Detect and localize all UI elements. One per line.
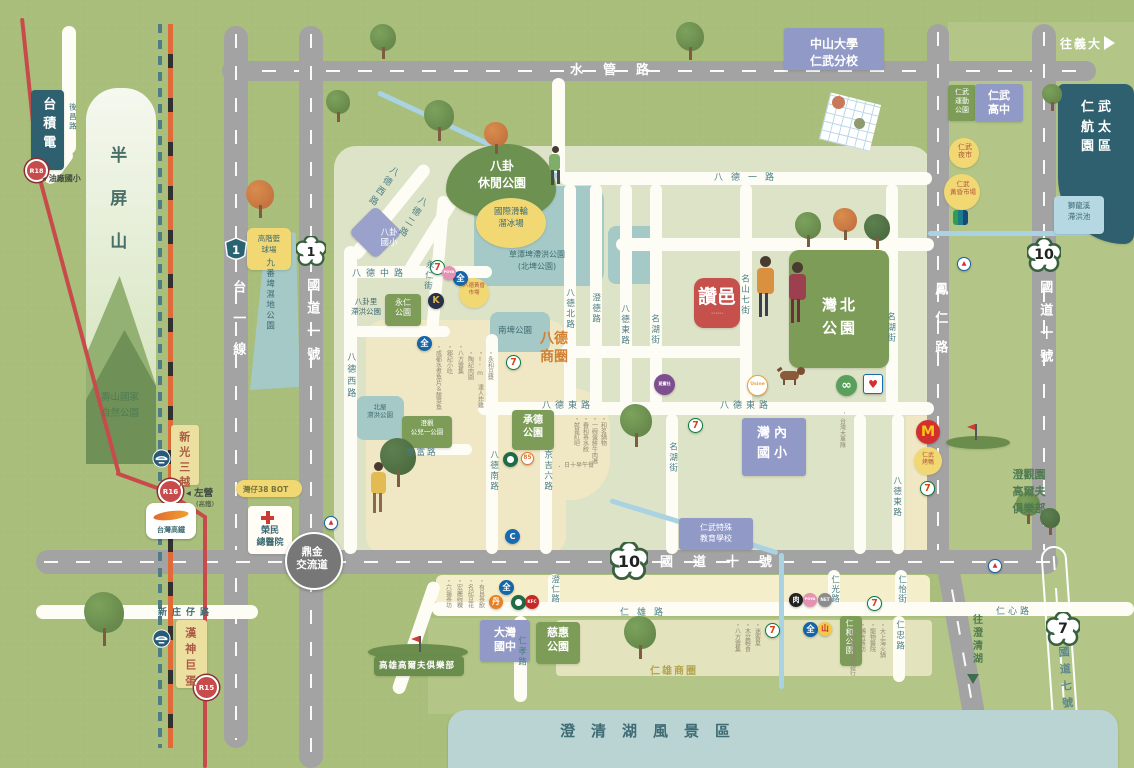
bank-icon-striped [953,210,968,225]
bank-icon-blue-glyph: C [509,532,515,540]
figure-body [371,472,386,494]
poi-label-renwu-hs: 仁武 高中 [977,89,1021,118]
figure-leg [797,299,800,321]
street-label-houchanglu: 後昌路 [68,103,77,132]
fengkang-market-icon: ♥ [863,374,883,394]
figure-body [757,268,774,294]
poi-label-chengqinghu-scenic: 澄清湖風景區 [560,722,746,741]
tree-icon [864,214,890,250]
poi-label-shinkong: 新光三越 [177,431,191,491]
street-label-yongrenjie: 永仁街 [421,260,434,292]
figure-leg [557,170,560,184]
cafe-mimi-icon-glyph: 覓蜜社 [658,382,671,386]
street-label-jingfulu: 京富路 [406,448,438,459]
figure-leg [791,299,794,323]
tree-icon [676,22,704,61]
picnic-illustration [824,94,882,150]
poi-label-beiwu: 北屋 滯洪公園 [358,403,402,420]
street-badexilu-v [344,246,357,554]
figure-head [374,462,383,471]
shop-label: ・有良茶飲 [477,578,485,608]
street-label-badedonglu-n: 八德東路 [619,304,630,346]
poi-label-wannei-es: 灣內 國小 [748,424,800,463]
golf-flag-icon [412,636,428,652]
interchange-label-dingjin: 鼎金 交流道 [288,546,336,572]
tree-icon [424,100,454,142]
poi-label-yongren-park: 永仁 公園 [387,298,419,317]
shop-label: ・迷客夏 [753,622,761,646]
tree-icon [246,180,274,219]
shop-label: ・寵物醫院 [868,622,876,652]
shield-freeway-7: 7 [1046,612,1080,646]
bbq-icon-glyph: 肉 [793,597,800,604]
shop-label: ・大上海火鍋 [878,622,886,658]
golf-flag-icon [968,424,984,440]
pxmart-icon-glyph: 全 [420,339,428,347]
street-label-minghujie-w: 名湖街 [649,314,660,346]
shield-freeway-10-east: 10 [1027,238,1061,272]
shop-label-taxi: ．台灣大車隊 [838,412,846,448]
road-provincial-1 [224,26,248,748]
figure-head [760,256,771,267]
poi-label-dawan-jhs: 大灣 國中 [484,626,526,655]
shop-label-roast-duck: 仁武 烤鴨 [915,452,941,466]
shop-label: ・成都水煮魚片＆酸菜魚 [434,344,442,410]
tree-icon [1042,84,1062,112]
seven-eleven-icon-glyph: 7 [510,358,516,367]
tree-trunk [438,127,441,141]
road-label-freeway-10-south: 國道十號 [660,555,792,571]
street-south-v1 [854,414,866,554]
seven-eleven-icon: 7 [765,623,780,638]
couple-woman-figure [788,262,804,324]
tree-trunk [382,47,385,59]
tree-trunk [337,112,340,123]
bbq-icon: 肉 [789,593,803,607]
road-label-fengrenlu: 鳳仁路 [931,282,947,369]
figure-head [552,146,559,153]
seven-eleven-icon-glyph: 7 [924,484,930,493]
starbucks-siren [515,599,522,606]
bank-icon-yellow-glyph: 山 [821,625,829,633]
street-label-chengdelu: 澄德路 [590,293,601,325]
figure-leg [373,493,376,513]
seven-eleven-icon: 7 [920,481,935,496]
poi-label-thsr: 台灣高鐵 [157,526,185,535]
poi-label-chengguan-park: 澄觀 公兒一公園 [404,419,450,437]
figure-leg [379,493,382,512]
shield-provincial-1: 1 [222,236,250,264]
dandan-burger-icon-glyph: 丹 [492,598,500,606]
mcdonalds-icon: M [916,420,940,444]
brand-label-zanyi: 讚邑 [697,286,737,310]
street-label-renxinlu: 仁心路 [996,607,1032,618]
poi-label-night-market: 仁武 夜市 [953,143,977,160]
poi-label-bade-shangquan: 八德 商圈 [538,330,570,366]
shop-label-bade-market: 八德黃昏 市場 [459,283,489,296]
shop-label: ・木盆輕食 [743,622,751,652]
poi-label-dusk-market: 仁武 黃昏市場 [944,181,982,197]
starbucks-siren [507,456,514,463]
cafe-85c-icon: 85 [521,452,534,465]
poi-label-jiufanpi: 九番埤濕地公園 [264,258,275,332]
road-centerline [44,561,1050,563]
poi-label-youchang-es: ◂ 油廠國小 [42,174,81,184]
shop-label: ・永和豆漿 [486,350,494,380]
seven-eleven-icon-glyph: 7 [692,421,698,430]
poi-label-to-yida: 往義大 [1060,37,1102,52]
street-minghujie-s [666,414,678,554]
picnic-person [854,118,865,129]
dog-figure [778,366,808,386]
tra-logo-icon-1 [152,449,171,468]
walking-woman-figure [370,462,386,514]
station-code: R16 [163,487,178,496]
seven-eleven-icon-glyph: 7 [871,599,877,608]
street-houchanglu [62,26,76,154]
tree-icon [484,122,508,156]
cafe-usine-icon: Usine [747,375,768,396]
seven-eleven-icon: 7 [506,355,521,370]
shop-label: ・宏麗碗粿 [455,578,463,608]
cpc-gas-icon: ▲ [324,516,338,530]
street-xinzhuangzailu [36,605,258,619]
poi-label-zuoying-hsr: (高鐵) [196,500,214,508]
shop-label: ・一碗蛋餅牛肉湯 [590,416,598,464]
tree-foliage [620,404,652,437]
street-label-badedonglu-h2: 八德東路 [720,401,772,412]
street-label-minghujie-s: 名湖街 [667,442,678,474]
mcdonalds-icon-glyph: M [921,425,935,439]
couple-man-figure [756,256,772,318]
tree-trunk [876,237,879,249]
dandan-burger-icon: 丹 [489,595,503,609]
street-label-renxionglu: 仁雄路 [620,608,671,619]
poi-label-nanpi-park: 南埤公園 [498,326,532,337]
street-label-renzhonglu: 仁忠路 [894,620,905,652]
flag-part [975,424,977,440]
tree-trunk [1049,526,1052,535]
street-label-chengrenlu: 澄仁路 [549,575,560,604]
starbucks-icon [503,452,518,467]
poi-label-renxiong-shangquan: 仁雄商圈 [650,666,698,679]
poi-label-shilongxi: 獅龍溪 滯洪池 [1058,201,1100,222]
road-centerline [235,34,237,740]
tree-trunk [807,235,810,247]
shop-label: ・名記豆花 [466,578,474,608]
kfc-icon-glyph: KFC [527,600,536,604]
flag-part [967,424,975,430]
shield-number: 10 [1034,247,1054,263]
shop-label: ・八方雲集 [456,344,464,374]
street-label-minghujie-e: 名湖街 [885,312,896,344]
poi-label-bagua-es: 八卦 國小 [374,228,404,248]
figure-body [789,274,806,300]
tree-icon [833,208,857,242]
shop-label: ・就是紅吧 [572,416,580,446]
tree-trunk [103,628,106,646]
street-label-badedonglu-v: 八德東路 [891,476,902,518]
street-label-badezhonglu: 八德中路 [352,269,408,280]
poi-label-tsmc: 台積電 [39,97,55,154]
poi-label-wanbei-park: 灣北 公園 [810,294,870,339]
k-brand-icon: K [428,293,444,309]
dog-leg [783,379,785,385]
tree-foliage [624,616,656,649]
tree-trunk [259,205,262,218]
infinity-brand-icon: ∞ [836,375,857,396]
pxmart-icon: 全 [499,580,514,595]
road-label-shuiguanlu: 水管路 [570,63,669,79]
chengqinghu-banner [448,710,1118,768]
road-freeway-1 [299,26,323,768]
tree-trunk [639,645,642,659]
picnic-person [832,96,845,109]
cross-bar [261,516,274,520]
road-label-freeway-10-east: 國道十號 [1036,280,1052,372]
shop-label: ・鴻吉茶坊 [858,622,866,652]
tree-trunk [635,433,638,447]
poi-label-kaohsiung-golf: 高雄高爾夫俱樂部 [379,661,455,672]
street-label-renguanglu: 仁光路 [829,575,840,604]
poi-label-nsysu: 中山大學 仁武分校 [784,36,884,70]
poi-label-baguali: 八卦里 滯洪公園 [346,297,386,317]
poi-label-chengde-park: 承德 公園 [514,414,552,440]
cpc-gas-icon: ▲ [988,559,1002,573]
thsr-swoosh-icon [153,509,190,522]
tra-logo-icon-2 [152,629,171,648]
pxmart-icon: 全 [803,622,818,637]
street-label-badedonglu-h1: 八德東路 [542,401,594,412]
road-label-freeway-1: 國道一號 [303,278,319,370]
poi-label-to-chengqinghu: 往澄清湖 [969,614,982,666]
bank-icon-yellow: 山 [818,622,832,636]
shield-number: 10 [618,552,640,571]
street-label-badenanlu: 八德南路 [488,450,499,492]
poi-label-bot: 灣仔38 BOT [243,485,288,494]
fengkang-market-icon-glyph: ♥ [868,379,878,390]
poi-label-aerospace-park: 仁武 航太 園區 [1072,98,1124,157]
k-brand-icon-glyph: K [432,296,439,305]
shop-label: ・六龜茶坊 [444,578,452,608]
poi-label-bagua-leisure-park: 八卦 休閒公園 [452,158,552,192]
tree-trunk [495,144,498,155]
tree-icon [84,592,124,648]
poi-label-banpingshan: 半屏山 [105,146,126,275]
shield-number: 7 [1058,621,1068,637]
starbucks-icon [511,595,526,610]
cpc-gas-icon: ▲ [957,257,971,271]
road-label-provincial-1: 台一線 [229,280,245,373]
redcross-icon [261,511,274,524]
cpc-gas-icon-glyph: ▲ [993,563,998,569]
shop-label: ・I'm 達人炸雞 [476,350,484,408]
tree-trunk [844,230,847,241]
tree-trunk [1051,102,1054,111]
figure-head [792,262,803,273]
bank-icon-blue: C [505,529,520,544]
seven-eleven-icon: 7 [688,418,703,433]
map-canvas: 1110107R18R16R15777777全全全全POYAPOYANET肉山M… [0,0,1134,768]
seven-eleven-icon-glyph: 7 [434,263,440,272]
poi-label-shoushan-park: 壽山國家 自然公園 [90,390,150,422]
tree-icon [795,212,821,248]
road-centerline [310,34,312,760]
poi-label-skate-rink: 國際滑輪 溜冰場 [478,207,544,231]
arrow-down-icon [967,674,979,684]
flag-part [419,636,421,652]
poi-label-veterans-hospital: 榮民 總醫院 [250,526,290,549]
kfc-icon: KFC [525,595,539,609]
cpc-gas-icon-glyph: ▲ [962,261,967,267]
street-label-mingshanqijie: 名山七街 [739,274,750,316]
poya-icon-glyph: POYA [444,271,455,275]
shield-freeway-10-south: 10 [610,542,648,580]
street-label-jingjiliulu: 京吉六路 [542,450,553,492]
infinity-brand-icon-glyph: ∞ [841,379,852,392]
street-west-h [344,326,450,337]
cafe-mimi-icon: 覓蜜社 [654,374,675,395]
pxmart-icon-glyph: 全 [806,625,814,633]
poi-label-zuoying: ◂ 左營 [186,488,213,500]
street-east-h3 [560,346,748,358]
poi-label-hanshin-arena: 漢神巨蛋 [183,627,197,691]
tree-icon [370,24,396,60]
figure-leg [759,293,762,317]
shop-label: ・八方雲集 [733,622,741,652]
picnic-blanket [819,92,881,151]
shop-label: ・上海商業儲蓄銀行 [848,622,856,676]
shop-label-brunch: ．日十早午餐 [558,462,594,470]
poi-label-basketball: 高階籃 球場 [251,234,287,255]
tree-foliage [84,592,124,633]
poi-label-caotanpi: 草潭埤滯洪公園 (北埤公園) [478,249,596,273]
figure-leg [765,293,768,315]
poya-icon: POYA [442,266,456,280]
shop-label: ・陶記肉圓 [466,350,474,380]
tree-trunk [689,47,692,60]
station-r15: R15 [194,675,219,700]
poi-label-special-school: 仁武特殊 教育學校 [683,522,749,544]
street-label-badexilu-v: 八德西路 [344,352,355,400]
cafe-85c-icon-glyph: 85 [523,456,531,462]
dog-leg [794,379,796,385]
tree-icon [326,90,350,124]
shield-number: 1 [232,243,240,257]
cafe-usine-icon-glyph: Usine [750,383,764,388]
tree-icon [620,404,652,449]
tree-icon [624,616,656,661]
street-label-badeyilu: 八德一路 [714,173,782,184]
poya-icon-glyph: POYA [805,598,816,602]
cpc-gas-icon-glyph: ▲ [329,520,334,526]
brand-label-zanyi-dots: ⋯⋯ [701,310,733,318]
shield-number: 1 [307,244,316,259]
shop-label: ・春和茶水餃 [581,416,589,452]
flag-part [411,636,419,642]
tree-foliage [424,100,454,131]
stream-south-3 [779,553,784,689]
seven-eleven-icon-glyph: 7 [769,626,775,635]
station-code: R15 [199,683,214,692]
pxmart-icon-glyph: 全 [502,583,510,591]
shield-freeway-1: 1 [296,236,326,266]
seven-eleven-icon: 7 [867,596,882,611]
pxmart-icon: 全 [417,336,432,351]
poi-label-renwu-sports-park: 仁武 運動 公園 [948,88,976,115]
street-badedonglu-n [620,184,632,410]
street-label-badebeilu: 八德北路 [564,288,575,330]
poi-label-cihui-park: 慈惠 公園 [538,626,578,655]
street-label-xinzhuangzailu: 新庄仔路 [158,608,214,619]
arrow-right-icon [1104,36,1115,50]
pxmart-icon-glyph: 全 [456,274,464,282]
poi-label-chengguanyuan-golf: 澄觀園 高爾夫 俱樂部 [1000,466,1058,517]
tree-trunk [397,470,400,486]
shop-label: ・和茗鍋物 [599,416,607,446]
shop-label: ・鄒記小吃 [445,344,453,374]
dog-head [797,367,805,375]
poya-icon: POYA [803,593,817,607]
street-label-renyijie: 仁怡街 [896,575,907,604]
